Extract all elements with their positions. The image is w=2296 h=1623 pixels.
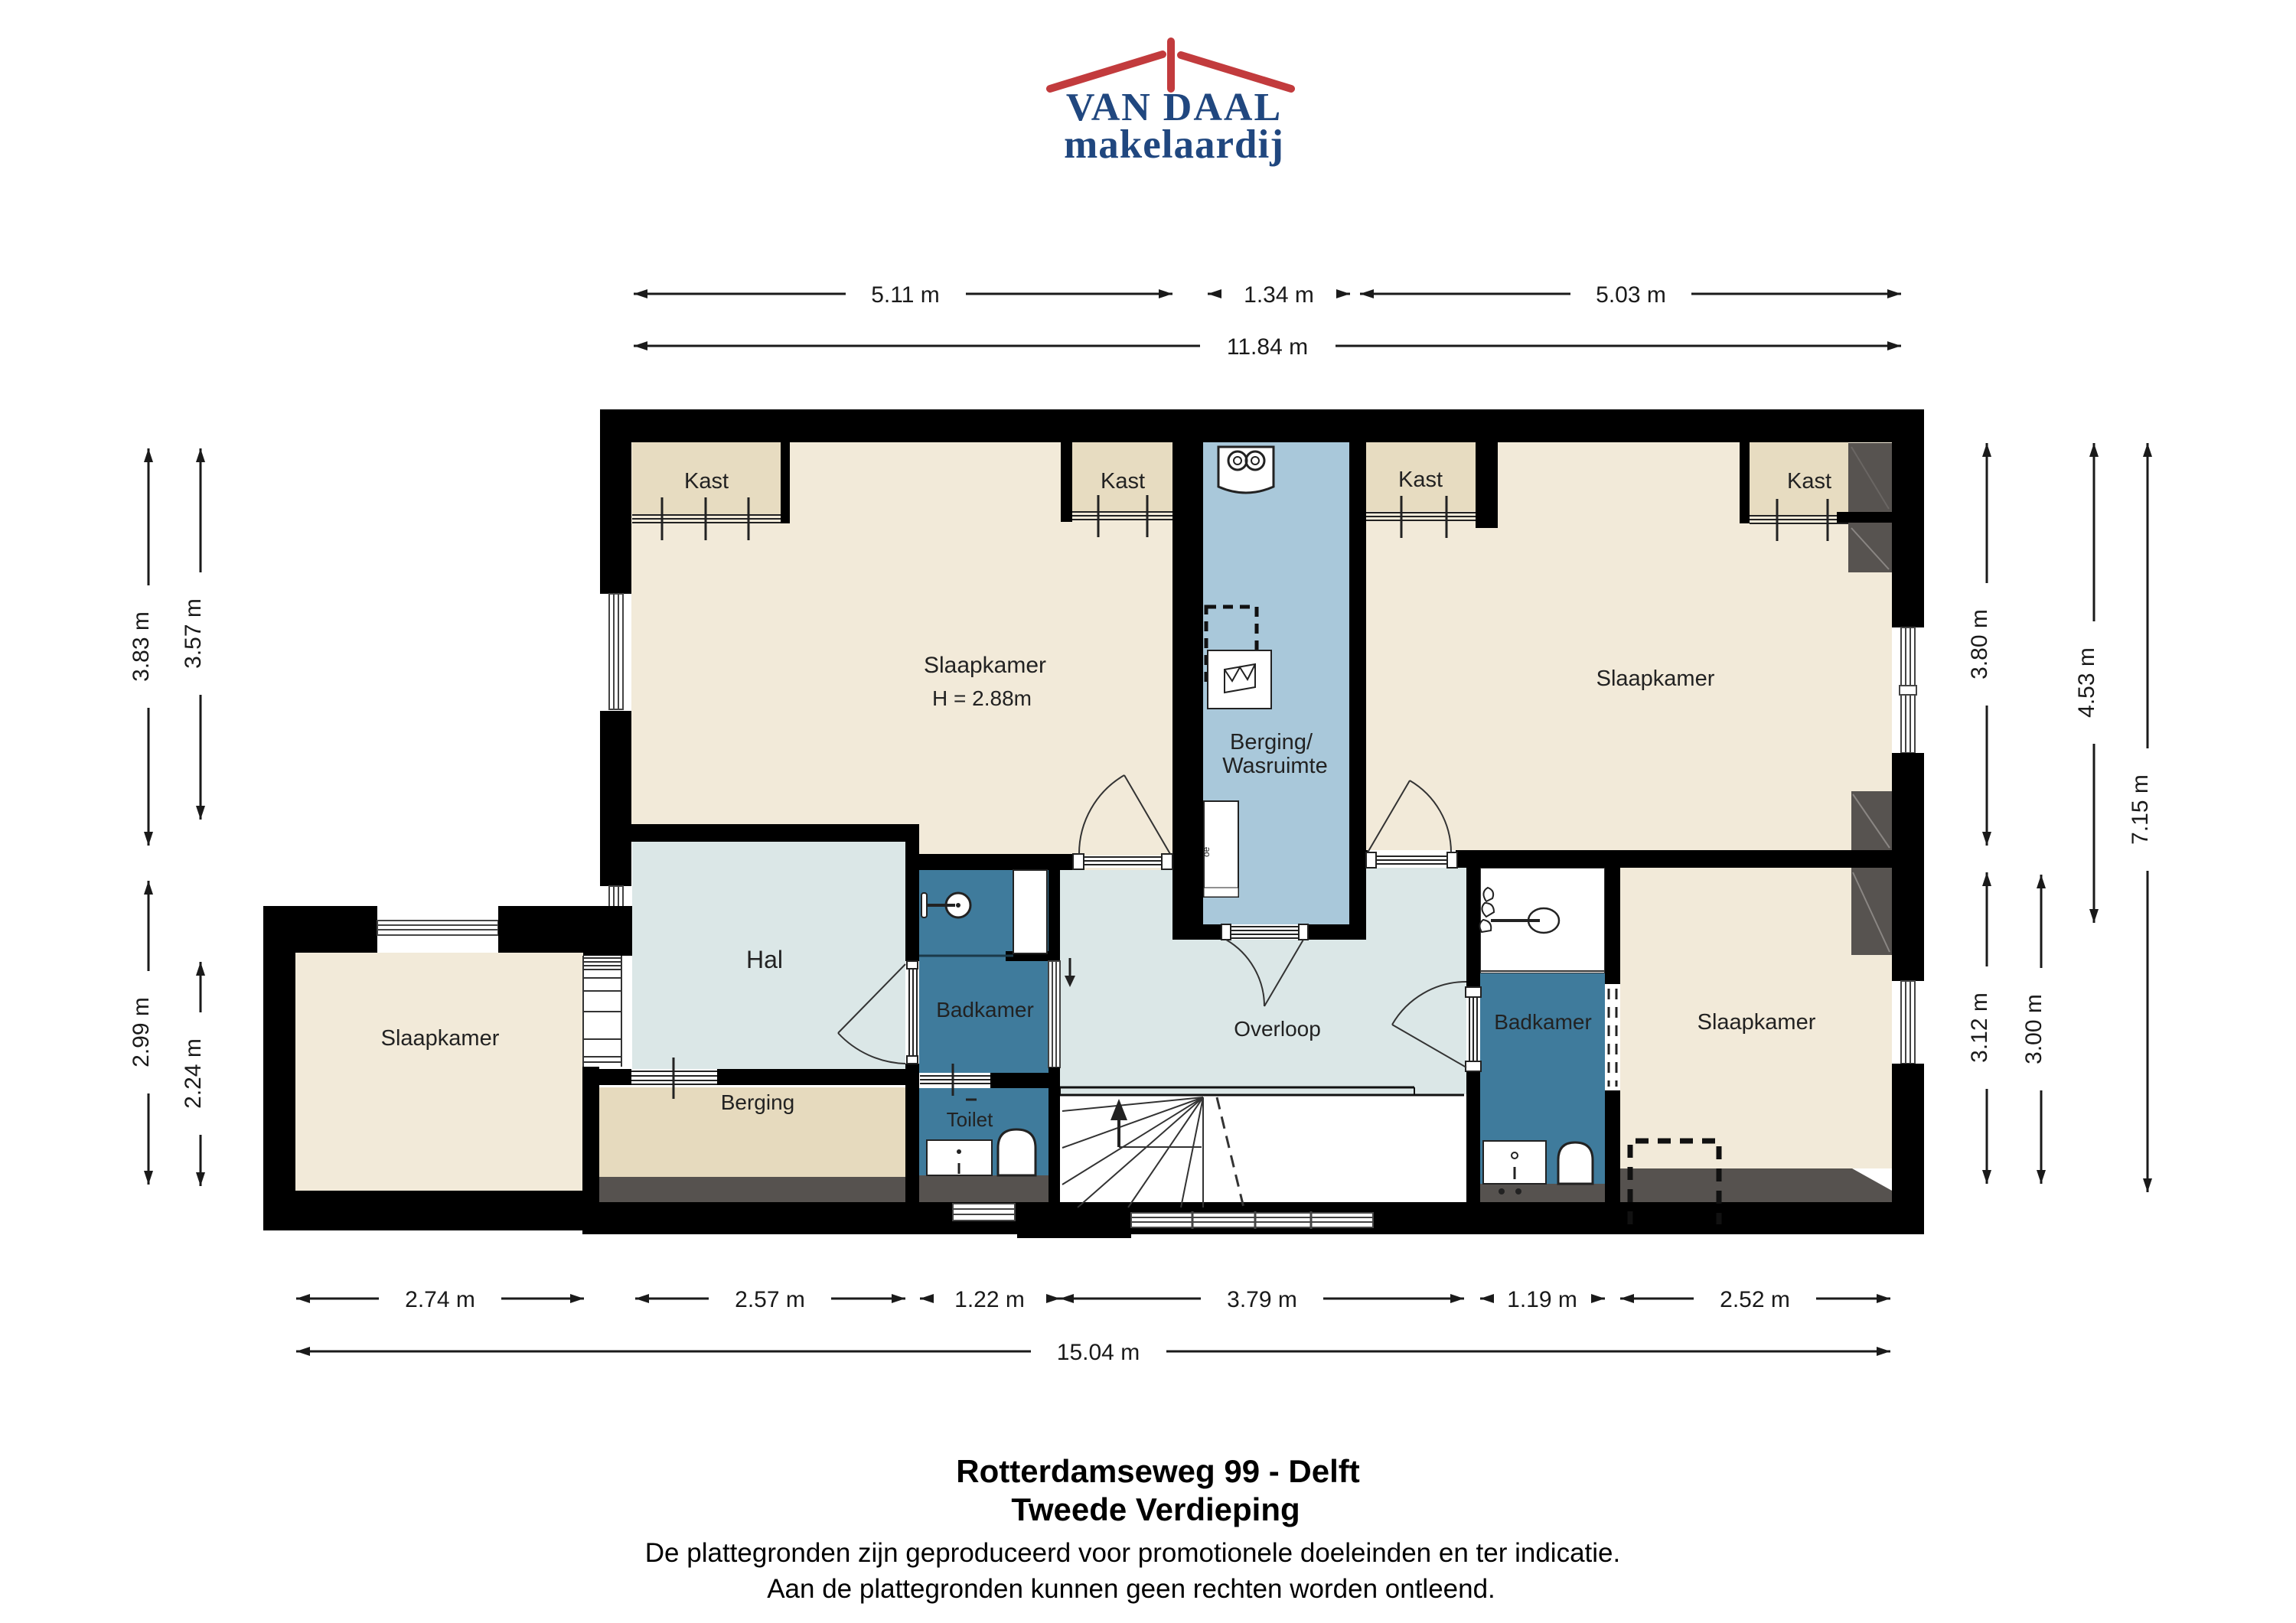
svg-text:Wasruimte: Wasruimte [1222, 754, 1328, 778]
svg-text:7.15 m: 7.15 m [2128, 774, 2153, 845]
svg-text:3.79 m: 3.79 m [1227, 1287, 1297, 1312]
svg-text:Aan de plattegronden kunnen ge: Aan de plattegronden kunnen geen rechten… [767, 1574, 1495, 1604]
svg-text:5.11 m: 5.11 m [871, 282, 940, 308]
svg-text:1.22 m: 1.22 m [954, 1287, 1025, 1312]
svg-text:Berging: Berging [721, 1090, 795, 1114]
svg-text:Slaapkamer: Slaapkamer [1596, 666, 1715, 691]
svg-text:oe: oe [1201, 846, 1212, 857]
svg-text:2.52 m: 2.52 m [1720, 1287, 1790, 1312]
svg-text:makelaardij: makelaardij [1064, 122, 1284, 167]
svg-text:4.53 m: 4.53 m [2074, 647, 2099, 718]
svg-text:Slaapkamer: Slaapkamer [381, 1026, 500, 1051]
svg-text:Badkamer: Badkamer [1494, 1010, 1592, 1034]
svg-text:Kast: Kast [1101, 469, 1145, 494]
svg-text:5.03 m: 5.03 m [1596, 282, 1666, 308]
svg-text:Slaapkamer: Slaapkamer [1698, 1010, 1816, 1035]
svg-text:Badkamer: Badkamer [936, 998, 1034, 1022]
svg-text:2.99 m: 2.99 m [129, 997, 154, 1067]
svg-text:2.24 m: 2.24 m [181, 1038, 206, 1109]
svg-text:1.34 m: 1.34 m [1244, 282, 1314, 308]
svg-text:Hal: Hal [746, 946, 783, 973]
svg-text:3.57 m: 3.57 m [181, 598, 206, 669]
svg-text:Tweede Verdieping: Tweede Verdieping [1011, 1491, 1300, 1527]
svg-text:Kast: Kast [1398, 468, 1443, 492]
svg-text:1.19 m: 1.19 m [1507, 1287, 1577, 1312]
svg-text:3.83 m: 3.83 m [129, 611, 154, 682]
svg-text:2.57 m: 2.57 m [735, 1287, 805, 1312]
svg-text:De plattegronden zijn geproduc: De plattegronden zijn geproduceerd voor … [645, 1538, 1620, 1568]
svg-text:Berging/: Berging/ [1230, 730, 1313, 754]
svg-text:H = 2.88m: H = 2.88m [932, 686, 1032, 710]
svg-text:15.04 m: 15.04 m [1057, 1340, 1140, 1365]
svg-text:3.80 m: 3.80 m [1967, 609, 1992, 680]
svg-text:3.12 m: 3.12 m [1967, 992, 1992, 1063]
svg-text:11.84 m: 11.84 m [1227, 334, 1308, 360]
svg-text:Kast: Kast [1787, 469, 1831, 494]
svg-text:3.00 m: 3.00 m [2021, 994, 2047, 1064]
svg-text:Toilet: Toilet [947, 1108, 993, 1131]
svg-text:Overloop: Overloop [1234, 1017, 1321, 1041]
svg-text:Slaapkamer: Slaapkamer [924, 653, 1046, 678]
svg-text:Rotterdamseweg 99 - Delft: Rotterdamseweg 99 - Delft [956, 1453, 1359, 1489]
svg-text:2.74 m: 2.74 m [405, 1287, 475, 1312]
svg-text:Kast: Kast [684, 469, 729, 494]
